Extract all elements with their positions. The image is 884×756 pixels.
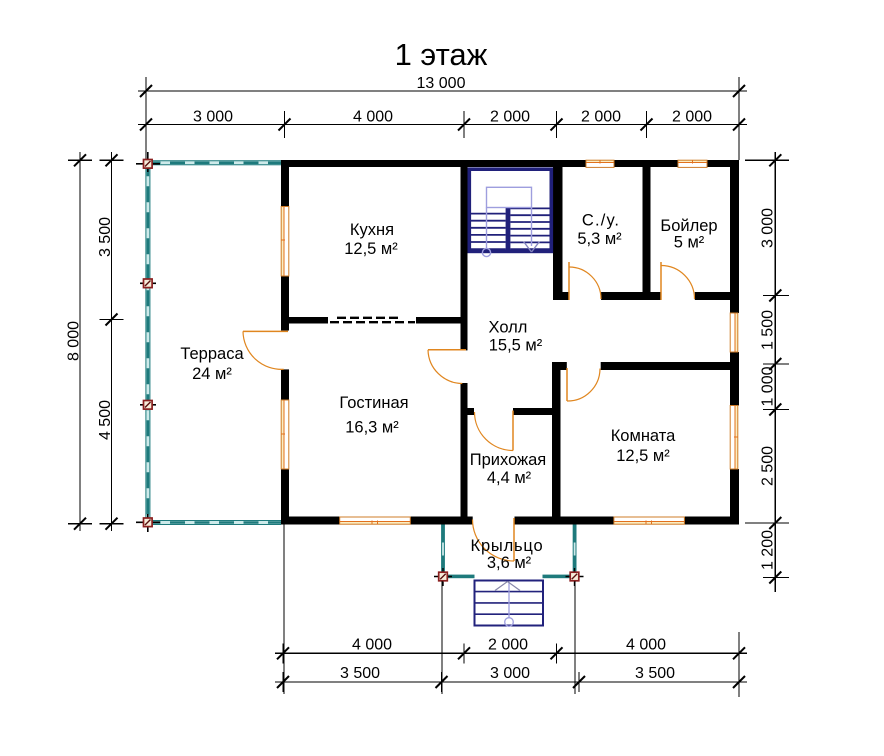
svg-text:4 000: 4 000 xyxy=(353,109,393,126)
svg-text:2 500: 2 500 xyxy=(760,446,777,486)
svg-text:12,5 м²: 12,5 м² xyxy=(344,240,398,258)
svg-text:4 000: 4 000 xyxy=(352,637,392,654)
svg-text:1 этаж: 1 этаж xyxy=(395,37,488,72)
svg-text:1 000: 1 000 xyxy=(760,366,777,406)
svg-text:Прихожая: Прихожая xyxy=(470,451,546,469)
svg-text:2 000: 2 000 xyxy=(488,637,528,654)
svg-text:Комната: Комната xyxy=(611,427,676,445)
svg-text:13 000: 13 000 xyxy=(417,75,466,92)
svg-text:2 000: 2 000 xyxy=(581,109,621,126)
svg-text:Бойлер: Бойлер xyxy=(660,217,717,235)
svg-text:3 500: 3 500 xyxy=(635,665,675,682)
svg-text:4,4 м²: 4,4 м² xyxy=(487,469,532,487)
svg-text:Холл: Холл xyxy=(489,319,528,337)
svg-text:8 000: 8 000 xyxy=(66,321,83,361)
svg-text:16,3 м²: 16,3 м² xyxy=(345,419,399,437)
svg-text:24 м²: 24 м² xyxy=(192,365,232,383)
svg-text:2 000: 2 000 xyxy=(672,109,712,126)
svg-text:4 500: 4 500 xyxy=(97,400,114,440)
svg-text:5,3 м²: 5,3 м² xyxy=(577,230,622,248)
svg-text:С./у.: С./у. xyxy=(582,212,620,230)
svg-text:2 000: 2 000 xyxy=(490,109,530,126)
svg-text:3 000: 3 000 xyxy=(760,208,777,248)
svg-text:3 500: 3 500 xyxy=(340,665,380,682)
svg-text:3 500: 3 500 xyxy=(97,217,114,257)
svg-text:3,6 м²: 3,6 м² xyxy=(487,554,532,572)
svg-text:Крыльцо: Крыльцо xyxy=(471,537,544,555)
svg-text:4 000: 4 000 xyxy=(626,637,666,654)
svg-text:15,5 м²: 15,5 м² xyxy=(489,337,543,355)
svg-text:Кухня: Кухня xyxy=(350,221,394,239)
svg-text:3 000: 3 000 xyxy=(193,109,233,126)
svg-text:1 200: 1 200 xyxy=(760,530,777,570)
svg-text:3 000: 3 000 xyxy=(490,665,530,682)
svg-text:1 500: 1 500 xyxy=(760,310,777,350)
svg-text:Гостиная: Гостиная xyxy=(339,394,408,412)
svg-text:12,5 м²: 12,5 м² xyxy=(616,447,670,465)
svg-text:Терраса: Терраса xyxy=(180,345,244,363)
svg-text:5 м²: 5 м² xyxy=(674,234,705,252)
